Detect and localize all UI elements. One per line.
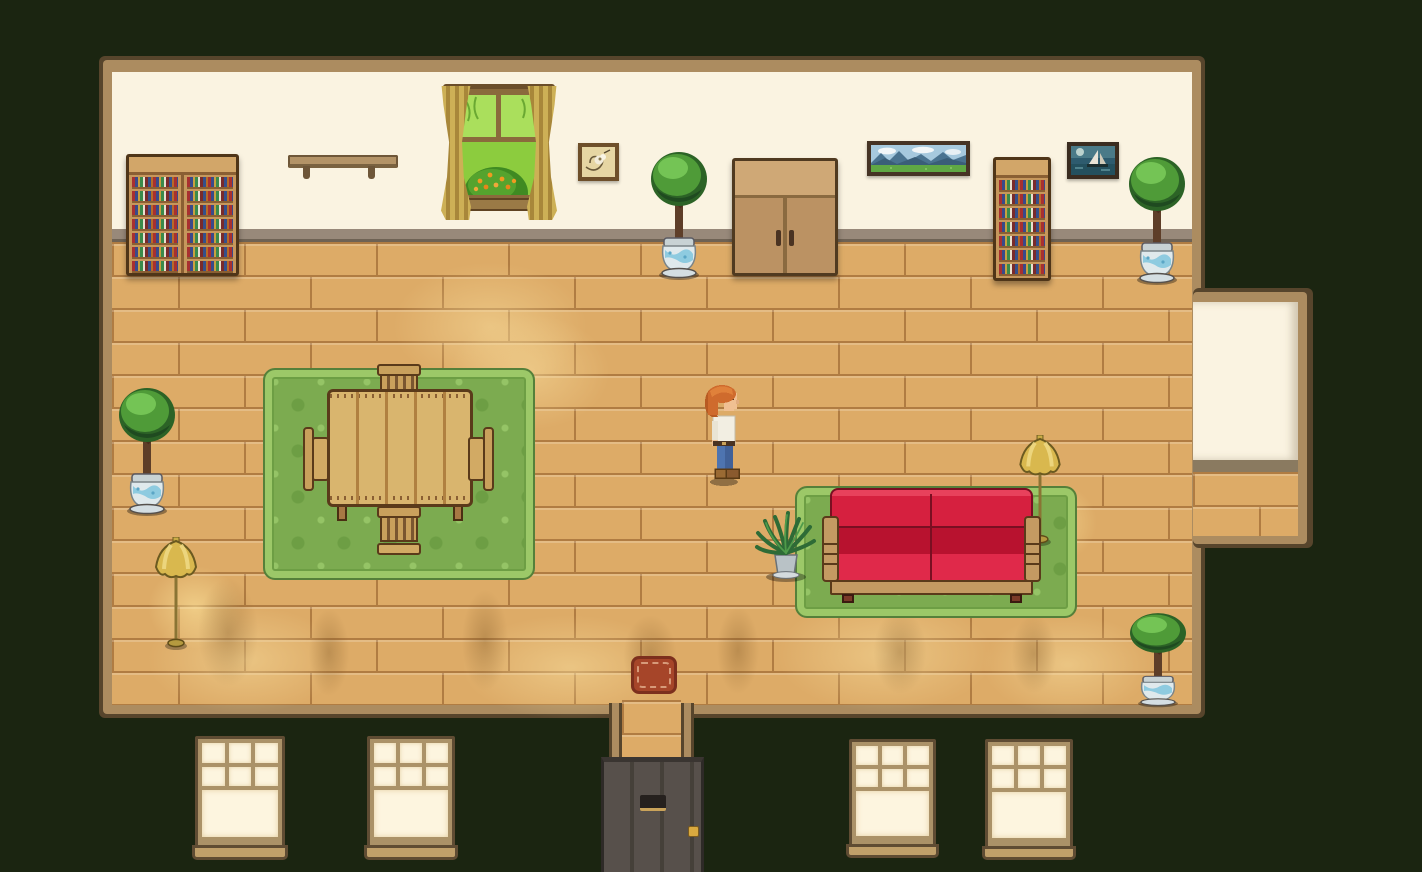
wardrobe[interactable] [732,158,838,276]
player-character[interactable] [700,383,748,487]
alcove-floor [1193,472,1298,536]
facade-window [849,739,936,847]
facade-window [367,736,455,848]
red-couch[interactable] [822,488,1041,606]
landscape-painting [867,141,970,176]
couch-base [830,580,1033,595]
corridor-wall [609,703,622,759]
dining-table[interactable] [327,389,473,507]
window-sill [192,845,288,860]
door-knob-icon [688,826,699,837]
sketch-picture [578,143,619,181]
potted-tree [648,145,710,281]
facade-window [985,739,1073,849]
front-door[interactable] [601,757,704,872]
alcove-wall [1193,302,1298,460]
couch-foot [1010,594,1022,603]
mail-slot-icon [640,795,666,811]
wardrobe-doors[interactable] [735,198,835,273]
window-frame [456,89,542,201]
potted-tree [1126,150,1188,286]
bookshelf-top [129,157,236,175]
wardrobe-handle [776,230,781,246]
doormat[interactable] [631,656,677,694]
wardrobe-handle [789,230,794,246]
garden-window [443,84,555,224]
wall-shelf-peg [368,166,375,179]
bookshelf-column [129,175,181,273]
bookshelf-top [996,160,1048,178]
wardrobe-top [735,161,835,198]
bookshelf-column [996,178,1048,276]
potted-tree [116,381,178,517]
wall-shelf-peg [303,166,310,179]
bookshelf-column [181,175,236,273]
window-mullion [496,95,501,139]
chair-right[interactable] [467,427,494,491]
floor-lamp[interactable] [151,537,201,651]
facade-window [195,736,285,848]
chair-left[interactable] [303,427,330,491]
fern-plant [753,485,817,583]
corridor-wall [681,703,694,759]
double-bookshelf[interactable] [126,154,239,276]
window-mullion [462,137,536,142]
game-scene [0,0,1422,872]
couch-foot [842,594,854,603]
window-sill [982,846,1076,860]
window-sill [846,844,939,858]
sailboat-painting [1067,142,1119,179]
couch-arm [1024,516,1041,582]
corridor-floor [622,700,681,759]
potted-tree [1127,608,1189,708]
chair-bottom[interactable] [377,506,421,556]
couch-arm [822,516,839,582]
window-sill [364,845,458,860]
alcove-wall-shadow [1193,460,1298,472]
single-bookshelf[interactable] [993,157,1051,281]
